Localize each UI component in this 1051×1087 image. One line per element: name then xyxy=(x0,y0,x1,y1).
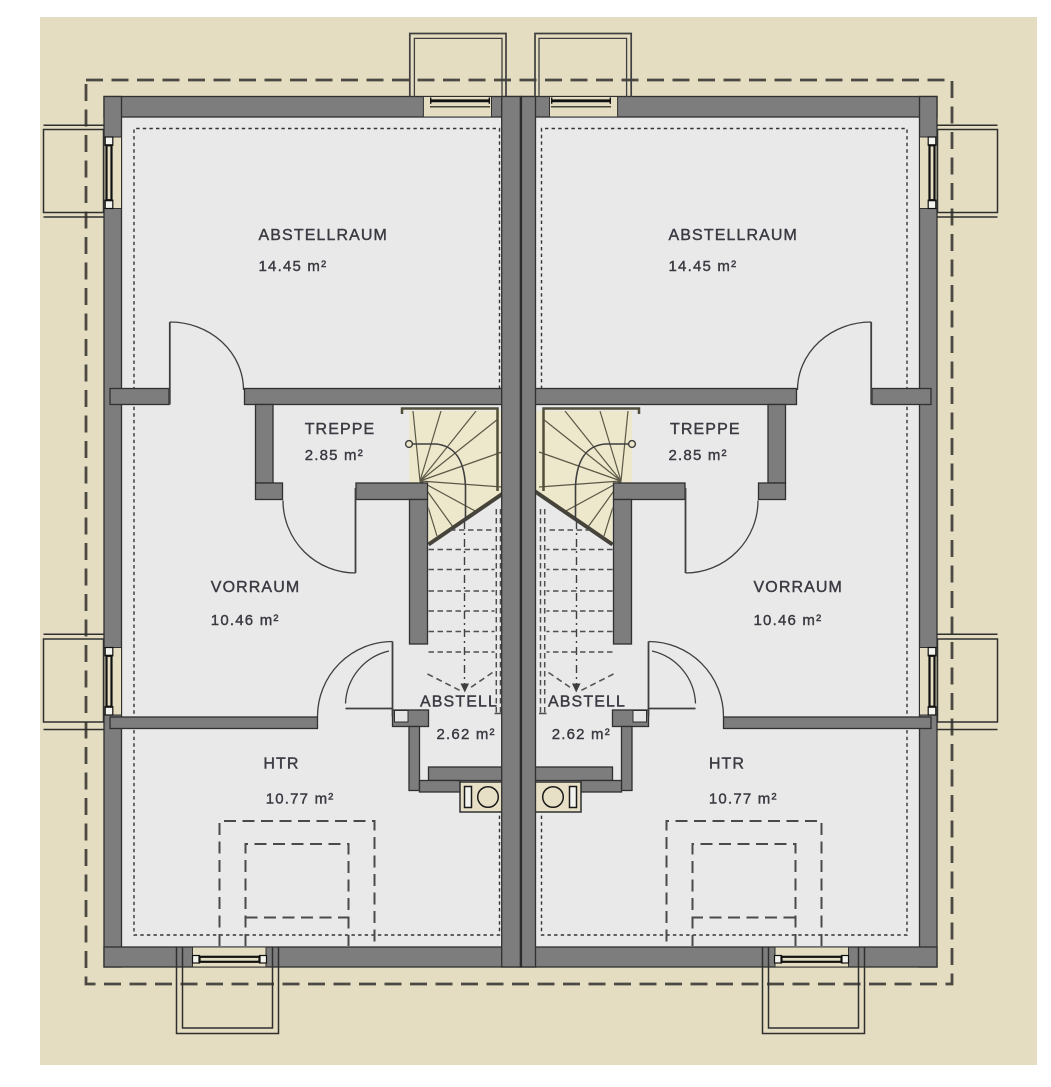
svg-text:VORRAUM: VORRAUM xyxy=(754,579,843,596)
svg-text:14.45 m²: 14.45 m² xyxy=(669,258,738,275)
svg-text:2.85 m²: 2.85 m² xyxy=(669,447,728,464)
svg-text:ABSTELLRAUM: ABSTELLRAUM xyxy=(259,227,388,244)
svg-text:ABSTELLRAUM: ABSTELLRAUM xyxy=(669,227,798,244)
svg-text:10.46 m²: 10.46 m² xyxy=(754,612,823,629)
svg-text:TREPPE: TREPPE xyxy=(670,421,741,438)
svg-text:10.77 m²: 10.77 m² xyxy=(266,791,335,808)
svg-text:ABSTELL: ABSTELL xyxy=(420,694,498,711)
svg-text:ABSTELL: ABSTELL xyxy=(548,694,626,711)
svg-text:HTR: HTR xyxy=(709,756,745,773)
svg-text:2.62 m²: 2.62 m² xyxy=(552,726,611,743)
svg-text:TREPPE: TREPPE xyxy=(305,421,376,438)
svg-text:2.85 m²: 2.85 m² xyxy=(305,447,364,464)
svg-text:VORRAUM: VORRAUM xyxy=(211,579,300,596)
svg-text:14.45 m²: 14.45 m² xyxy=(259,258,328,275)
svg-text:2.62 m²: 2.62 m² xyxy=(437,726,496,743)
svg-text:HTR: HTR xyxy=(263,756,299,773)
svg-text:10.46 m²: 10.46 m² xyxy=(211,612,280,629)
svg-text:10.77 m²: 10.77 m² xyxy=(709,791,778,808)
